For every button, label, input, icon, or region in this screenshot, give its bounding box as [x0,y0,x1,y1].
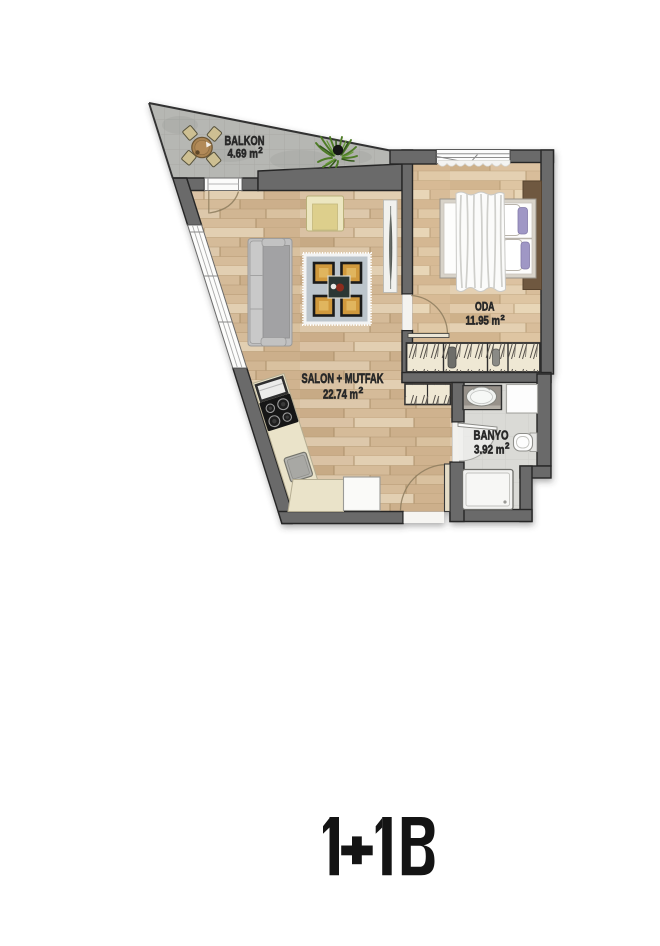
svg-text:BANYO: BANYO [474,427,509,442]
svg-text:ODA: ODA [475,299,495,313]
svg-text:2: 2 [258,146,263,155]
svg-text:SALON + MUTFAK: SALON + MUTFAK [302,370,384,386]
svg-text:2: 2 [501,313,505,322]
svg-text:2: 2 [359,385,364,395]
svg-text:4.69 m: 4.69 m [228,147,259,161]
svg-text:11.95 m: 11.95 m [466,314,501,328]
svg-text:2: 2 [505,442,510,451]
svg-text:3.92 m: 3.92 m [474,443,505,457]
svg-text:22.74 m: 22.74 m [323,386,358,401]
